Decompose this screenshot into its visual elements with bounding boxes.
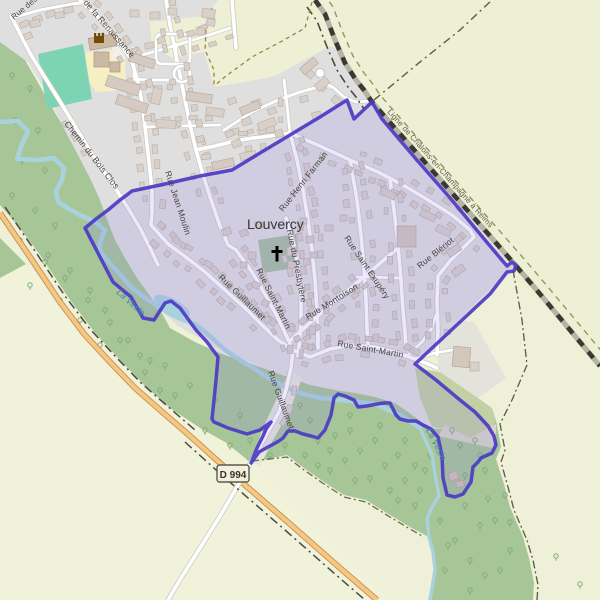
svg-text:D 994: D 994 — [220, 470, 247, 481]
